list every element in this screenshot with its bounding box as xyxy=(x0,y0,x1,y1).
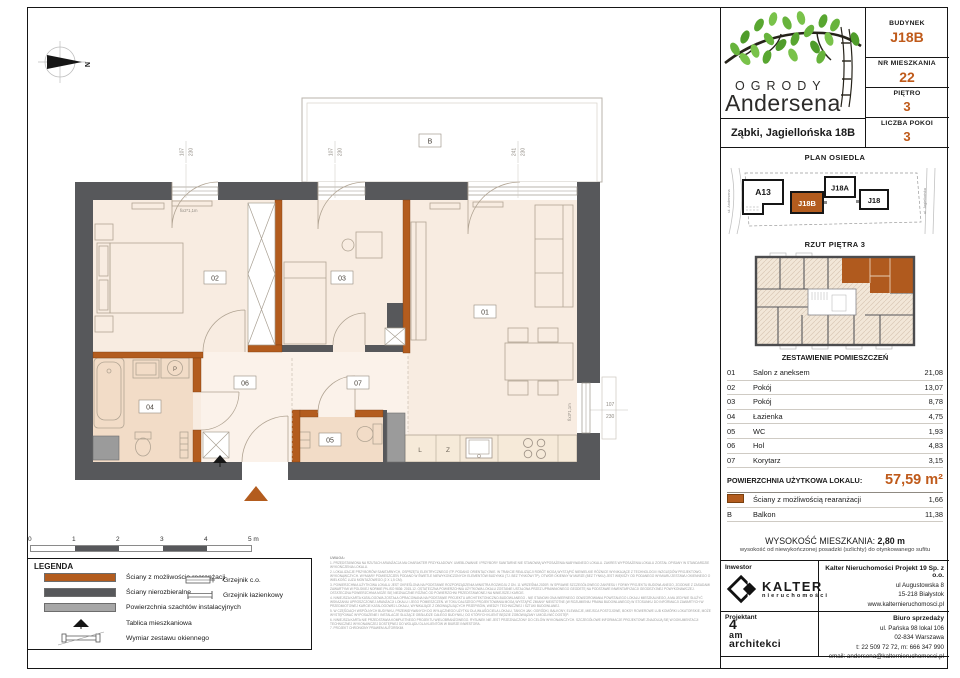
street-label-left: ul. Andersena xyxy=(727,189,731,213)
svg-text:A13: A13 xyxy=(755,187,771,197)
note-item: 3. POWIERZCHNIA UŻYTKOWA LOKALU JEST OKR… xyxy=(330,583,716,595)
window-salon xyxy=(468,182,577,200)
street-label-right: ul. Jagiellońska xyxy=(923,187,927,214)
table-row: 06 Hol 4,83 xyxy=(727,439,943,454)
svg-text:J18B: J18B xyxy=(798,199,817,208)
compass-north-label: N xyxy=(83,62,90,67)
floor-overview-title: RZUT PIĘTRA 3 xyxy=(721,240,949,249)
entrance-arrow-icon xyxy=(244,486,268,501)
kalter-sub: nieruchomości xyxy=(762,594,829,600)
fix-label-top: fix2*1,1m xyxy=(180,208,198,213)
table-row: 03 Pokój 8,78 xyxy=(727,395,943,410)
apartment-board-legend-icon xyxy=(44,617,116,629)
floor-label: PIĘTRO xyxy=(893,90,920,97)
legend-item-radiator: Grzejnik c.o. xyxy=(185,575,261,585)
note-item: 5. W CZĘŚCIACH WSPÓLNYCH BUDYNKU, PRZEWI… xyxy=(330,609,716,617)
height-label: WYSOKOŚĆ MIESZKANIA: xyxy=(765,536,875,546)
note-item: 7. PROJEKT CHRONIONY PRAWEM AUTORSKIM. xyxy=(330,626,716,630)
dim-w2-height: 230 xyxy=(338,148,344,157)
scale-bar-strip xyxy=(30,545,252,552)
legend-item-window-dim: Wymiar zestawu okiennego xyxy=(44,630,209,646)
scale-bar: 0 1 2 3 4 5 m xyxy=(30,536,260,552)
room-label-01: 01 xyxy=(481,310,489,317)
project-address: Ząbki, Jagiellońska 18B xyxy=(721,118,865,147)
apartment-number-cell: NR MIESZKANIA 22 xyxy=(865,57,949,88)
scale-tick: 4 xyxy=(204,536,208,543)
developer-address: Kalter Nieruchomości Projekt 19 Sp. z o.… xyxy=(824,565,944,609)
notes-block: UWAGA: 1. PRZEDSTAWIONA NA RZUTACH ARANŻ… xyxy=(330,556,716,631)
scale-tick: 3 xyxy=(160,536,164,543)
scale-tick: 5 m xyxy=(248,536,259,543)
dark-wall-swatch xyxy=(44,588,116,597)
table-row: 02 Pokój 13,07 xyxy=(727,381,943,396)
orange-wall-swatch xyxy=(727,494,744,503)
info-panel: OGRODY Andersena Ząbki, Jagiellońska 18B… xyxy=(720,7,949,668)
dim-w4-height: 230 xyxy=(606,414,615,420)
room-label-07: 07 xyxy=(354,381,362,388)
room-label-02: 02 xyxy=(211,276,219,283)
site-plan: A13 J18B J18A J18 ul. Andersena ul. Jagi… xyxy=(721,164,949,238)
total-area-value: 57,59 m² xyxy=(885,472,943,488)
investor-label: Inwestor xyxy=(725,564,752,571)
legend-item-bathroom-radiator: Grzejnik łazienkowy xyxy=(185,590,283,600)
fridge-letter: L xyxy=(418,447,422,454)
site-building-a13: A13 xyxy=(743,180,783,214)
building-value: J18B xyxy=(890,29,923,45)
rearrangeable-walls-row: Ściany z możliwością rearanżacji 1,66 xyxy=(727,493,943,508)
table-row: 05 WC 1,93 xyxy=(727,424,943,439)
dim-w4-width: 107 xyxy=(606,402,615,408)
apartment-floor-plan: N xyxy=(30,40,690,510)
dim-w3-width: 241 xyxy=(512,148,518,157)
floor-value: 3 xyxy=(903,99,910,114)
scale-tick: 0 xyxy=(28,536,32,543)
legend-item-structural-walls: Ściany nierozbieralne xyxy=(44,588,191,597)
legend-title: LEGENDA xyxy=(34,562,73,571)
leaves xyxy=(728,10,861,67)
table-row: 04 Łazienka 4,75 xyxy=(727,410,943,425)
note-item: 4. NINIEJSZA KARTA KATALOGOWA ZOSTAŁA OP… xyxy=(330,596,716,608)
balcony xyxy=(302,98,602,182)
shaft-swatch xyxy=(44,603,116,612)
dim-w1-height: 230 xyxy=(189,148,195,157)
rooms-count-cell: LICZBA POKOI 3 xyxy=(865,117,949,147)
scale-tick: 2 xyxy=(116,536,120,543)
site-building-j18a: J18A xyxy=(825,177,855,197)
site-building-j18: J18 xyxy=(860,190,888,209)
kalter-name: KALTER xyxy=(762,580,829,593)
total-area-row: POWIERZCHNIA UŻYTKOWA LOKALU: 57,59 m² xyxy=(727,468,943,493)
legend: LEGENDA Ściany z możliwością rearanżacji… xyxy=(27,558,312,650)
rooms-table: ZESTAWIENIE POMIESZCZEŃ 01 Salon z aneks… xyxy=(727,353,943,522)
room-label-06: 06 xyxy=(241,381,249,388)
floor-overview-plan xyxy=(750,251,920,351)
building-label: BUDYNEK xyxy=(889,20,925,27)
dim-w3-height: 230 xyxy=(521,148,527,157)
window-room02 xyxy=(172,182,218,200)
kitchen-sink-icon xyxy=(466,438,492,458)
legend-item-shafts: Powierzchnia szachtów instalacyjnych xyxy=(44,603,241,612)
building-cell: BUDYNEK J18B xyxy=(865,7,949,58)
room-label-05: 05 xyxy=(326,438,334,445)
window-kitchen xyxy=(577,377,616,439)
room-label-04: 04 xyxy=(146,405,154,412)
dim-w1-width: 107 xyxy=(180,148,186,157)
logo-line-2: Andersena xyxy=(725,90,841,117)
kitchen-counter: L Z xyxy=(405,435,577,462)
window-dimension-legend-icon xyxy=(44,630,116,646)
kalter-mark-icon xyxy=(726,574,758,606)
dishwasher-letter: Z xyxy=(446,447,450,454)
washer-letter: P xyxy=(173,367,177,373)
orange-wall-swatch xyxy=(44,573,116,582)
kalter-logo: KALTER nieruchomości xyxy=(726,574,829,606)
divider xyxy=(721,147,949,148)
room-label-03: 03 xyxy=(338,276,346,283)
notes-title: UWAGA: xyxy=(330,556,716,560)
bathroom-radiator-legend-icon xyxy=(185,590,217,600)
note-item: 2. LOKALIZACJE PRZYBORÓW SANITARNYCH, OS… xyxy=(330,570,716,582)
room-label-balcony: B xyxy=(428,139,433,146)
apartment-height: WYSOKOŚĆ MIESZKANIA: 2,80 m wysokość od … xyxy=(721,536,949,553)
site-building-j18b: J18B xyxy=(791,192,823,213)
svg-text:J18A: J18A xyxy=(831,184,850,193)
sales-office-address: Biuro sprzedaży ul. Pańska 98 lokal 106 … xyxy=(824,615,944,661)
site-plan-title: PLAN OSIEDLA xyxy=(721,153,949,162)
height-value: 2,80 m xyxy=(878,536,905,546)
total-area-label: POWIERZCHNIA UŻYTKOWA LOKALU: xyxy=(727,476,862,485)
scale-tick: 1 xyxy=(72,536,76,543)
apartment-number-label: NR MIESZKANIA xyxy=(878,60,936,67)
legend-item-board: Tablica mieszkaniowa xyxy=(44,617,192,629)
svg-text:J18: J18 xyxy=(868,196,881,205)
height-note: wysokość od niewykończonej posadzki (szl… xyxy=(721,547,949,553)
table-row: 01 Salon z aneksem 21,08 xyxy=(727,366,943,381)
dim-w2-width: 107 xyxy=(329,148,335,157)
companies-block: Inwestor KALTER nieruchomości Projektant… xyxy=(721,560,949,657)
note-item: 1. PRZEDSTAWIONA NA RZUTACH ARANŻACJA MA… xyxy=(330,561,716,569)
fix-label-right: fix3*1,1m xyxy=(567,403,572,421)
rooms-count-value: 3 xyxy=(903,129,910,144)
floor-cell: PIĘTRO 3 xyxy=(865,87,949,118)
compass-icon: N xyxy=(38,41,90,83)
4am-architekci-logo: 4 am architekci xyxy=(729,618,781,650)
note-item: 6. NINIEJSZA KARTA NIE PRZEDSTAWIA KOMPL… xyxy=(330,618,716,626)
balcony-row: B Balkon 11,38 xyxy=(727,508,943,523)
rooms-count-label: LICZBA POKOI xyxy=(881,120,933,127)
rooms-table-title: ZESTAWIENIE POMIESZCZEŃ xyxy=(727,353,943,362)
apartment-number-value: 22 xyxy=(899,69,915,85)
window-room03 xyxy=(318,182,365,200)
table-row: 07 Korytarz 3,15 xyxy=(727,454,943,469)
divider xyxy=(721,611,949,612)
entrance-opening xyxy=(242,462,288,480)
radiator-legend-icon xyxy=(185,575,217,585)
